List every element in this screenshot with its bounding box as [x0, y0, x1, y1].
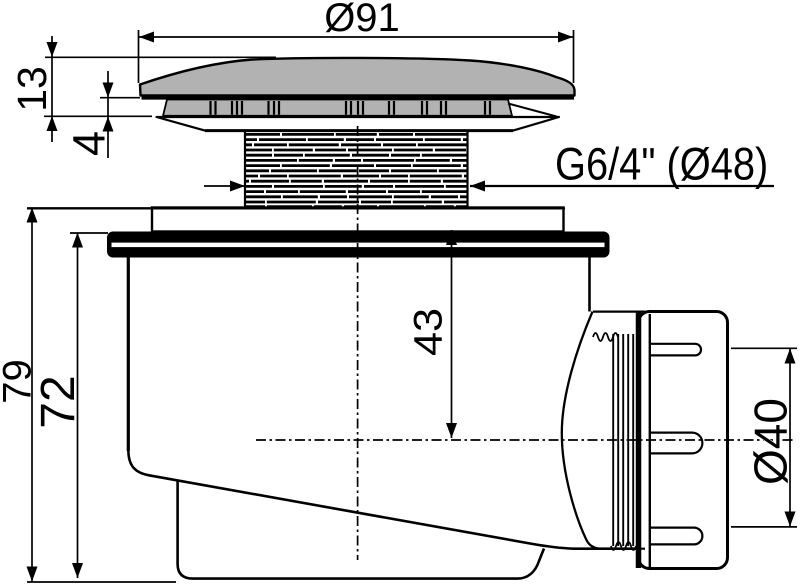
svg-text:Ø91: Ø91: [324, 0, 400, 40]
svg-text:43: 43: [405, 308, 450, 356]
svg-text:4: 4: [64, 131, 115, 156]
svg-text:Ø40: Ø40: [745, 398, 797, 485]
svg-text:13: 13: [9, 66, 55, 112]
svg-text:G6/4" (Ø48): G6/4" (Ø48): [555, 140, 768, 190]
